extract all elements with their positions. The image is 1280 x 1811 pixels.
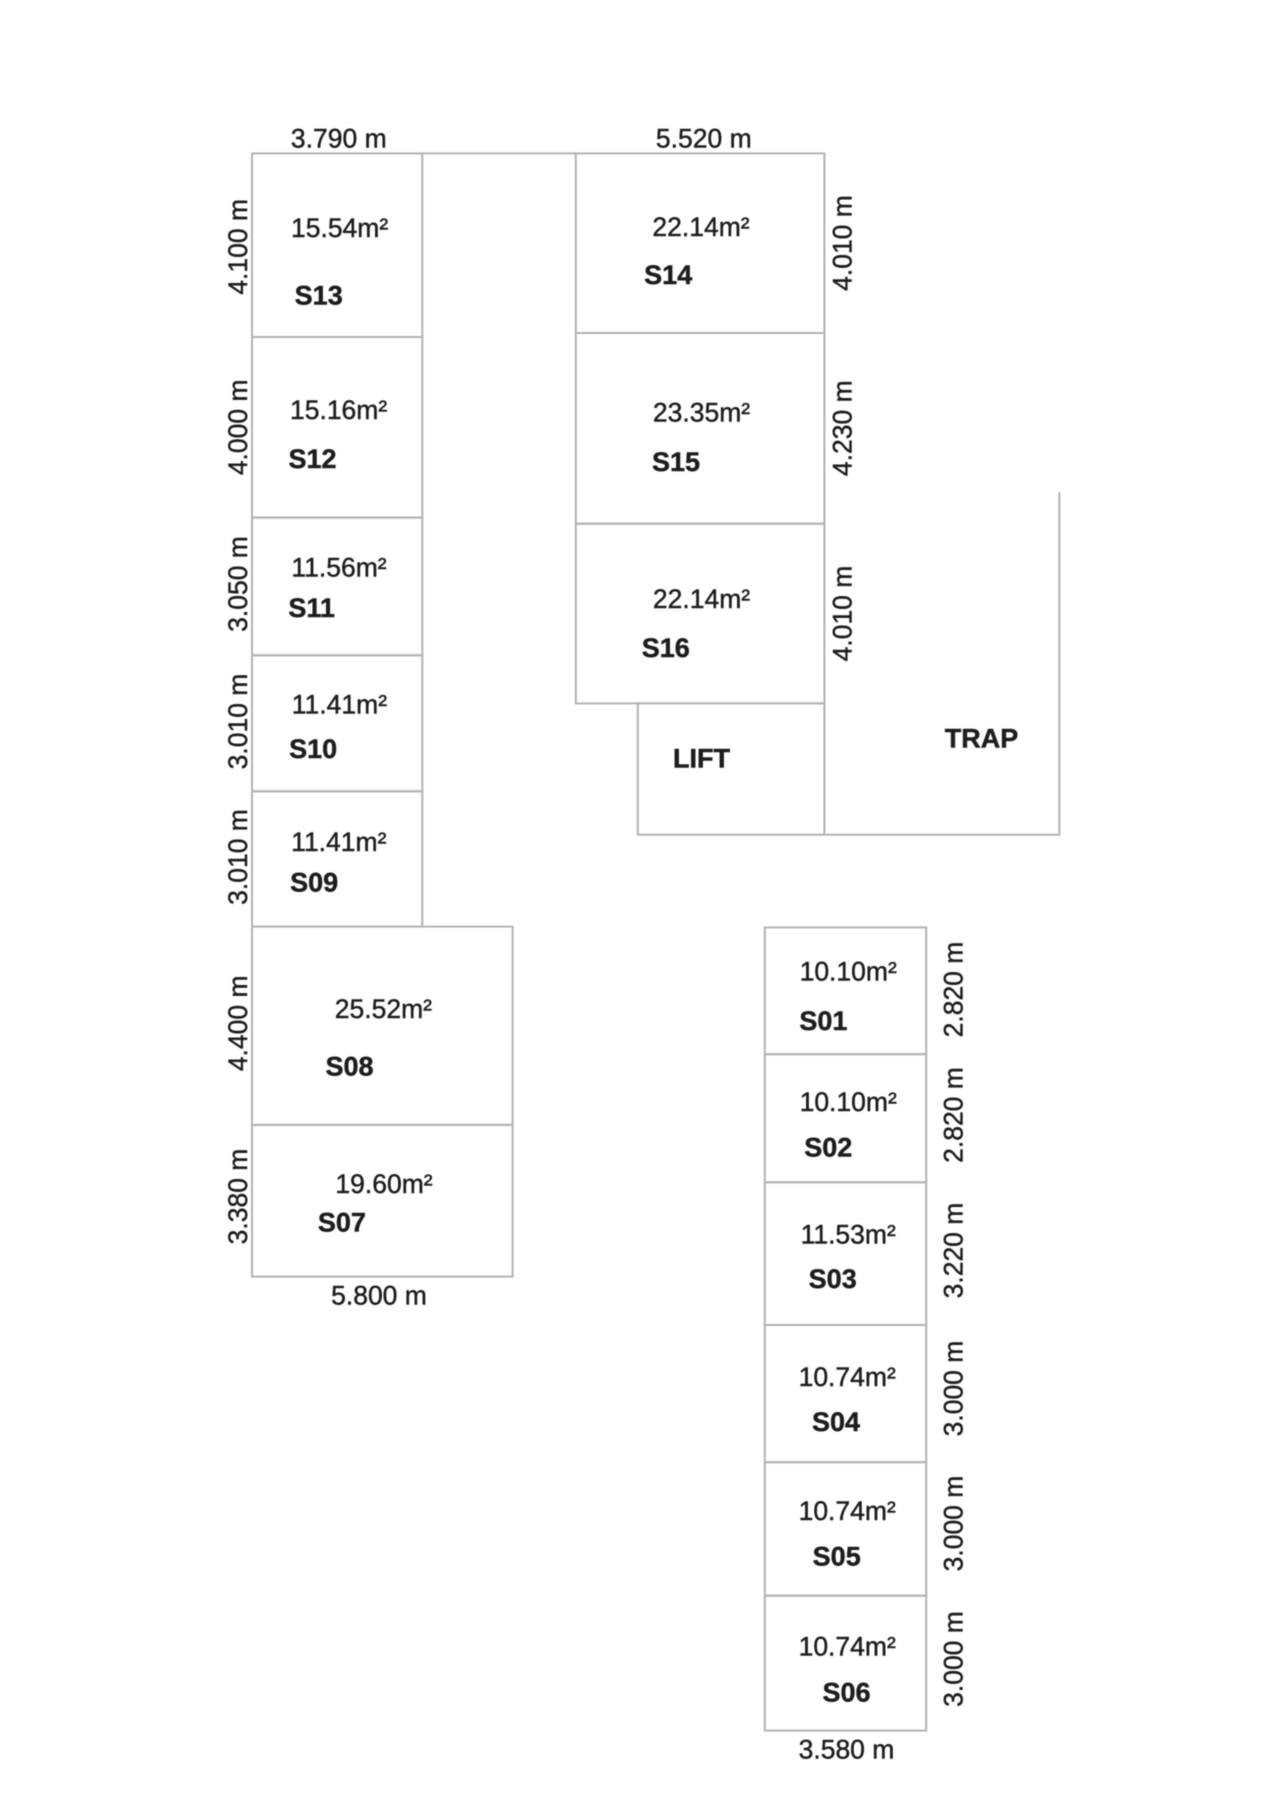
svg-text:2.820 m: 2.820 m	[939, 942, 969, 1038]
svg-text:LIFT: LIFT	[673, 743, 730, 773]
svg-text:22.14m²: 22.14m²	[652, 212, 749, 242]
svg-text:10.74m²: 10.74m²	[799, 1496, 896, 1526]
svg-text:22.14m²: 22.14m²	[653, 584, 750, 614]
svg-text:3.380 m: 3.380 m	[223, 1149, 253, 1245]
svg-text:5.800 m: 5.800 m	[331, 1280, 427, 1310]
svg-text:3.000 m: 3.000 m	[939, 1611, 969, 1707]
svg-text:S09: S09	[290, 867, 338, 897]
svg-text:S07: S07	[318, 1207, 366, 1237]
svg-text:S11: S11	[288, 593, 335, 623]
svg-text:S05: S05	[813, 1542, 861, 1572]
svg-text:3.000 m: 3.000 m	[939, 1476, 969, 1572]
svg-text:3.050 m: 3.050 m	[223, 536, 253, 632]
svg-text:4.230 m: 4.230 m	[828, 380, 858, 476]
svg-text:S02: S02	[804, 1132, 852, 1162]
svg-text:3.580 m: 3.580 m	[799, 1735, 895, 1765]
svg-text:S14: S14	[644, 260, 692, 290]
svg-text:S10: S10	[289, 734, 337, 764]
svg-text:S16: S16	[642, 633, 690, 663]
svg-text:4.100 m: 4.100 m	[223, 199, 253, 295]
svg-text:2.820 m: 2.820 m	[939, 1067, 969, 1163]
svg-text:25.52m²: 25.52m²	[335, 994, 432, 1024]
svg-text:4.400 m: 4.400 m	[223, 975, 253, 1071]
svg-text:S04: S04	[812, 1407, 860, 1437]
svg-text:S03: S03	[809, 1264, 857, 1294]
svg-text:S08: S08	[325, 1052, 373, 1082]
svg-text:11.41m²: 11.41m²	[291, 827, 386, 857]
svg-text:S12: S12	[288, 444, 336, 474]
svg-text:10.10m²: 10.10m²	[800, 957, 897, 987]
svg-text:10.74m²: 10.74m²	[799, 1362, 896, 1392]
svg-text:S01: S01	[799, 1006, 847, 1036]
svg-text:3.790 m: 3.790 m	[291, 124, 387, 154]
svg-text:15.54m²: 15.54m²	[291, 213, 388, 243]
svg-text:11.41m²: 11.41m²	[292, 689, 387, 719]
svg-text:3.010 m: 3.010 m	[223, 674, 253, 770]
svg-text:3.220 m: 3.220 m	[939, 1203, 969, 1299]
svg-text:4.010 m: 4.010 m	[828, 195, 858, 291]
svg-text:5.520 m: 5.520 m	[656, 124, 752, 154]
svg-text:4.000 m: 4.000 m	[223, 379, 253, 475]
svg-text:19.60m²: 19.60m²	[335, 1169, 432, 1199]
svg-text:S13: S13	[295, 281, 343, 311]
svg-text:3.010 m: 3.010 m	[223, 809, 253, 905]
svg-text:23.35m²: 23.35m²	[653, 397, 750, 427]
svg-text:11.56m²: 11.56m²	[291, 553, 386, 583]
svg-text:TRAP: TRAP	[945, 724, 1019, 754]
svg-text:11.53m²: 11.53m²	[801, 1220, 896, 1250]
svg-text:S15: S15	[652, 447, 700, 477]
svg-text:3.000 m: 3.000 m	[939, 1341, 969, 1437]
svg-text:15.16m²: 15.16m²	[290, 395, 387, 425]
svg-text:10.74m²: 10.74m²	[799, 1631, 896, 1661]
svg-text:4.010 m: 4.010 m	[828, 566, 858, 662]
svg-text:S06: S06	[822, 1678, 870, 1708]
svg-text:10.10m²: 10.10m²	[800, 1087, 897, 1117]
